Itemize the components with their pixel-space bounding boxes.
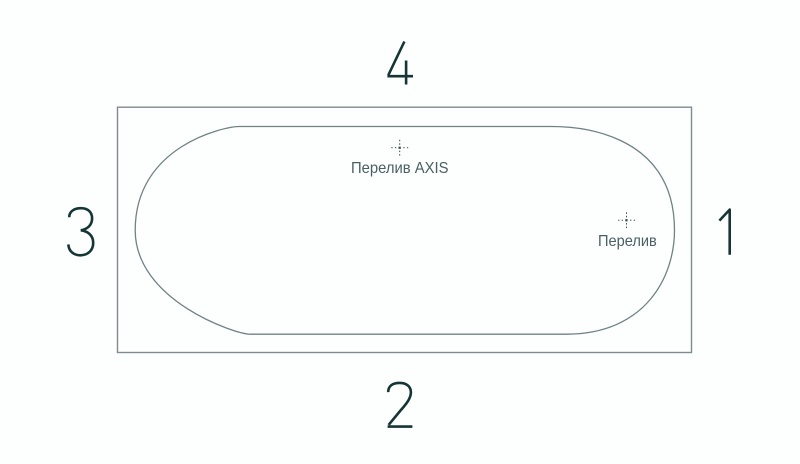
svg-text:Перелив: Перелив bbox=[598, 233, 657, 250]
svg-text:Перелив AXIS: Перелив AXIS bbox=[351, 160, 449, 177]
